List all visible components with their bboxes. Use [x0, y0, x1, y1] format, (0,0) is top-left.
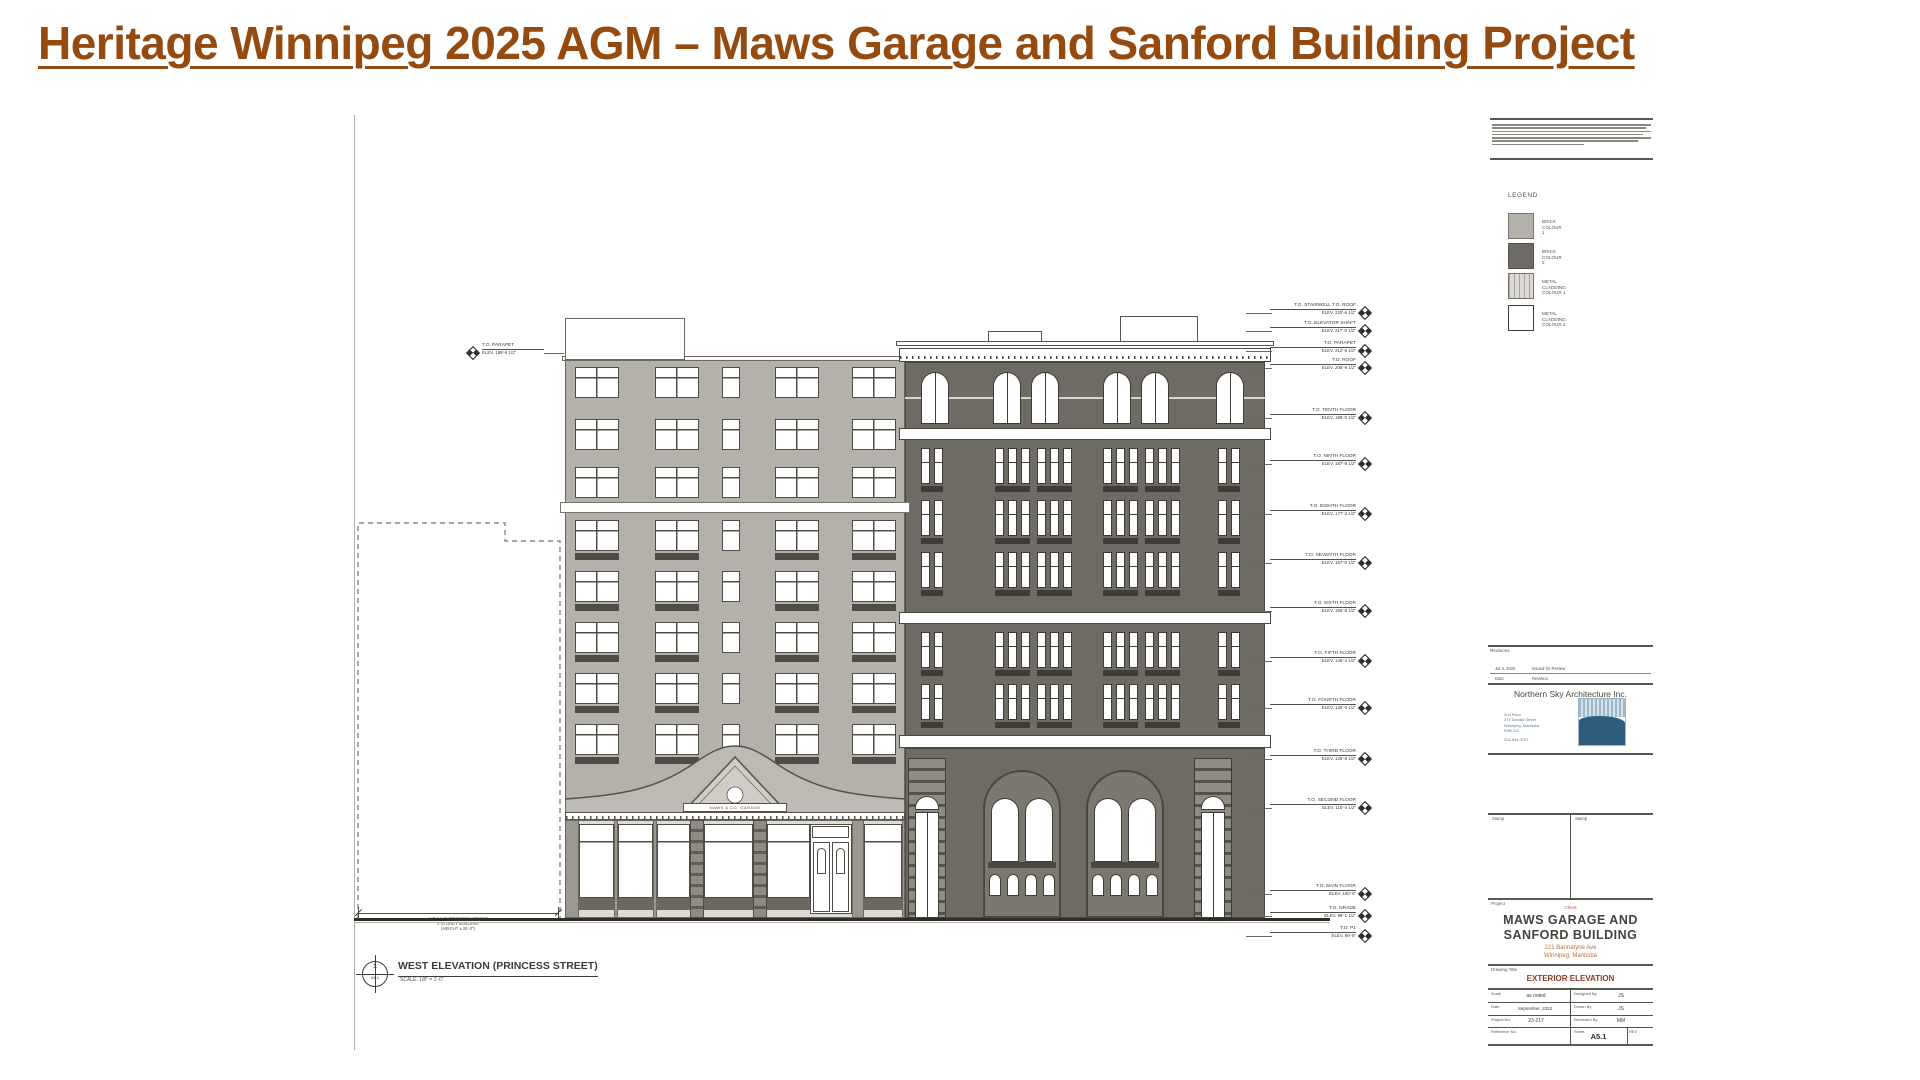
window [921, 500, 930, 536]
balcony-rail [1145, 670, 1180, 676]
window [1063, 632, 1072, 668]
elevation-marker: T.O. SECOND FLOORELEV. 115'-4 1/2" [1270, 798, 1356, 812]
storefront-bulkhead [618, 898, 653, 910]
balcony-rail [655, 655, 699, 662]
architect-logo [1578, 698, 1626, 746]
window [655, 367, 699, 398]
balcony-rail [1145, 590, 1180, 596]
window [775, 520, 819, 551]
legend-item-label: COLOUR 2 [1542, 255, 1562, 266]
revision-desc: Issued for Review [1532, 666, 1565, 671]
window [1171, 632, 1180, 668]
elevation-marker: T.O. EIGHTH FLOORELEV. 177'-4 1/2" [1270, 504, 1356, 518]
project-name-line1: MAWS GARAGE AND [1488, 913, 1653, 927]
elevation-marker: T.O. SIXTH FLOORELEV. 156'-8 1/2" [1270, 601, 1356, 615]
leader-line [544, 353, 564, 354]
view-title: WEST ELEVATION (PRINCESS STREET) [398, 960, 598, 977]
elevation-marker: T.O. STAIRWELL T.O. ROOFELEV. 220'-6 1/2… [1270, 303, 1356, 317]
brick-colour2-swatch [1508, 243, 1534, 269]
balcony-rail [1145, 538, 1180, 544]
balcony-rail [921, 486, 943, 492]
legend-item-label: COLOUR 1 [1542, 225, 1562, 236]
storefront-bulkhead [657, 898, 690, 910]
architect-address: 2nd Floor 374 Donald Street Winnipeg, Ma… [1504, 712, 1574, 742]
balcony-rail [1103, 590, 1138, 596]
window [1037, 500, 1046, 536]
leader-line [1246, 418, 1272, 419]
window [1008, 448, 1017, 484]
window [1008, 684, 1017, 720]
window [1021, 448, 1030, 484]
window [934, 552, 943, 588]
balcony-rail [1145, 722, 1180, 728]
window [921, 552, 930, 588]
elevation-marker: T.O. THIRD FLOORELEV. 125'-8 1/2" [1270, 749, 1356, 763]
elevation-marker: T.O. GRADEELEV. 99'-1 1/2" [1270, 906, 1356, 920]
storefront-window [704, 824, 753, 898]
right-building-belt-course [899, 428, 1271, 440]
window [655, 419, 699, 450]
elevation-marker: T.O. NINTH FLOORELEV. 187'-8 1/2" [1270, 454, 1356, 468]
window [1231, 552, 1240, 588]
window [1050, 500, 1059, 536]
window [1116, 500, 1125, 536]
balcony-rail [921, 670, 943, 676]
dimension-line [358, 913, 559, 914]
window [1231, 632, 1240, 668]
elevation-target-icon [1358, 324, 1372, 338]
storefront-window [618, 824, 653, 898]
window [1103, 448, 1112, 484]
elevation-marker: T.O. ELEVATOR SHAFTELEV. 217'-0 1/2" [1270, 321, 1356, 335]
basement-arch-window [1092, 874, 1104, 896]
arched-window [1141, 372, 1169, 424]
balcony-rail [575, 604, 619, 611]
window [1231, 500, 1240, 536]
balcony-rail [1037, 538, 1072, 544]
project-name-line2: SANFORD BUILDING [1488, 928, 1653, 942]
window [1116, 552, 1125, 588]
basement-arch-window [1043, 874, 1055, 896]
window [1158, 632, 1167, 668]
drawn-by-label: Drawn By [1574, 1004, 1591, 1009]
grade-line [354, 918, 1330, 921]
window [921, 684, 930, 720]
leader-line [1246, 563, 1272, 564]
window [1050, 552, 1059, 588]
designed-by-value: JS [1606, 993, 1636, 999]
leader-line [1246, 708, 1272, 709]
window [1063, 448, 1072, 484]
window [1158, 552, 1167, 588]
window [1103, 500, 1112, 536]
window [1171, 684, 1180, 720]
window [575, 673, 619, 704]
window [1231, 684, 1240, 720]
window [775, 419, 819, 450]
balcony-rail [1103, 670, 1138, 676]
scale-value: as noted [1506, 993, 1566, 999]
balcony-rail [852, 706, 896, 713]
balcony-rail [1218, 486, 1240, 492]
storefront-window [767, 824, 810, 898]
elevation-target-icon [1358, 654, 1372, 668]
window [1116, 684, 1125, 720]
legend: LEGEND BRICK COLOUR 1 BRICK COLOUR 2 MET… [1508, 192, 1658, 199]
elevation-marker: T.O. MAIN FLOORELEV. 100'-0" [1270, 884, 1356, 898]
window [1021, 684, 1030, 720]
window [1037, 552, 1046, 588]
window [1171, 448, 1180, 484]
window [1129, 500, 1138, 536]
window [852, 520, 896, 551]
right-building-cornice-cap [896, 341, 1274, 346]
arched-window [1216, 372, 1244, 424]
balcony-rail [1103, 538, 1138, 544]
window [1145, 552, 1154, 588]
storefront-window [657, 824, 690, 898]
elevation-target-icon [1358, 556, 1372, 570]
balcony-rail [575, 655, 619, 662]
window [1158, 684, 1167, 720]
window [852, 673, 896, 704]
rev-divider [1627, 1027, 1628, 1044]
leader-line [1246, 759, 1272, 760]
balcony-rail [852, 655, 896, 662]
reviewed-by-value: MM [1606, 1018, 1636, 1024]
left-building-roof-stair-enclosure [565, 318, 685, 360]
window [655, 622, 699, 653]
window [1129, 448, 1138, 484]
elevation-marker: T.O. PARAPETELEV. 188'-6 1/2" [482, 343, 544, 357]
window [722, 419, 740, 450]
right-base-belt-course [899, 735, 1271, 748]
elevation-marker: T.O. FIFTH FLOORELEV. 146'-4 1/2" [1270, 651, 1356, 665]
balcony-rail [655, 706, 699, 713]
balcony-rail [995, 486, 1030, 492]
bubble-sheet-ref: A5.1 [362, 975, 388, 983]
window [1218, 552, 1227, 588]
window [722, 467, 740, 498]
elevation-target-icon [1358, 306, 1372, 320]
arched-window [921, 372, 949, 424]
arch-impost-band [905, 397, 1265, 399]
notes-top-rule [1490, 118, 1653, 120]
bubble-number: 1 [362, 963, 388, 973]
drawing-title: EXTERIOR ELEVATION [1488, 974, 1653, 983]
leader-line [1246, 313, 1272, 314]
balcony-rail [1218, 722, 1240, 728]
designed-by-label: Designed By [1574, 991, 1597, 996]
leader-line [1246, 611, 1272, 612]
window [995, 552, 1004, 588]
window [1218, 684, 1227, 720]
storefront-bulkhead [767, 898, 810, 910]
window [1158, 500, 1167, 536]
project-address-line2: Winnipeg, Manitoba [1488, 953, 1653, 959]
slide: Heritage Winnipeg 2025 AGM – Maws Garage… [0, 0, 1920, 1080]
banded-column [690, 820, 704, 918]
window [575, 571, 619, 602]
legend-item-label: METAL CLADDING [1542, 311, 1566, 322]
balcony-rail [1103, 722, 1138, 728]
storefront-bulkhead [579, 898, 614, 910]
elevation-target-icon [1358, 929, 1372, 943]
window [995, 448, 1004, 484]
drawing-title-label: Drawing Title [1491, 967, 1517, 972]
door-transom [812, 826, 849, 838]
brick-colour1-swatch [1508, 213, 1534, 239]
stamp-label-2: Stamp [1575, 816, 1587, 821]
balcony-rail [921, 722, 943, 728]
window [934, 632, 943, 668]
window [921, 448, 930, 484]
project-address-line1: 221 Bannatyne Ave [1488, 945, 1653, 951]
leader-line [1246, 464, 1272, 465]
storefront-window [864, 824, 902, 898]
leader-line [1246, 331, 1272, 332]
bay-arched-window [1094, 798, 1122, 862]
bay-arched-window [1025, 798, 1053, 862]
elevation-marker: T.O. P1ELEV. 89'-6" [1270, 926, 1356, 940]
leader-line [1246, 894, 1272, 895]
window [722, 367, 740, 398]
window [852, 367, 896, 398]
window [575, 622, 619, 653]
stamp-label-1: Stamp [1492, 816, 1504, 821]
basement-arch-window [1110, 874, 1122, 896]
elevation-marker: T.O. FOURTH FLOORELEV. 136'-0 1/2" [1270, 698, 1356, 712]
elevation-marker: T.O. TENTH FLOORELEV. 198'-0 1/2" [1270, 408, 1356, 422]
window [655, 673, 699, 704]
window [852, 467, 896, 498]
reviewed-by-label: Reviewed By [1574, 1017, 1597, 1022]
window [1129, 552, 1138, 588]
balcony-rail [995, 670, 1030, 676]
grade-shadow-line [354, 922, 1330, 923]
door-panel-window [836, 848, 845, 874]
right-building-belt-course [899, 612, 1271, 624]
window [1037, 632, 1046, 668]
leader-line [1246, 661, 1272, 662]
storefront-pilaster [902, 820, 905, 918]
window [1116, 448, 1125, 484]
basement-arch-window [989, 874, 1001, 896]
window [1129, 632, 1138, 668]
legend-item-label: COLOUR 1 [1542, 290, 1566, 296]
metal-cladding1-swatch [1508, 273, 1534, 299]
right-building-cornice [899, 348, 1271, 362]
balcony-rail [1103, 486, 1138, 492]
date-value: September, 2023 [1502, 1006, 1568, 1011]
right-roof-stair-enclosure [1120, 316, 1198, 343]
legend-item: BRICK COLOUR 1 [1508, 213, 1534, 239]
window [852, 571, 896, 602]
window [995, 684, 1004, 720]
window [722, 520, 740, 551]
bay-arched-window [991, 798, 1019, 862]
window [775, 571, 819, 602]
project-no-value: 23-217 [1506, 1018, 1566, 1024]
window [1218, 500, 1227, 536]
view-scale: SCALE: 1/8" = 1'-0" [400, 977, 600, 985]
metal-cladding2-swatch [1508, 305, 1534, 331]
balcony-rail [1037, 590, 1072, 596]
balcony-rail [995, 590, 1030, 596]
balcony-rail [775, 655, 819, 662]
balcony-rail [995, 538, 1030, 544]
window [1063, 684, 1072, 720]
window [1129, 684, 1138, 720]
window [1145, 632, 1154, 668]
window [775, 367, 819, 398]
window [934, 684, 943, 720]
window [722, 673, 740, 704]
stamp-divider [1570, 813, 1571, 898]
window [1037, 448, 1046, 484]
window [995, 500, 1004, 536]
window [1021, 552, 1030, 588]
window [1218, 448, 1227, 484]
reference-no-label: Reference No. [1491, 1029, 1517, 1034]
entrance-door [1201, 812, 1225, 918]
balcony-rail [775, 706, 819, 713]
elevation-target-icon [1358, 801, 1372, 815]
window [921, 632, 930, 668]
leader-line [1246, 808, 1272, 809]
elevation-target-icon [1358, 604, 1372, 618]
balcony-rail [655, 604, 699, 611]
window [655, 467, 699, 498]
elevation-target-icon [1358, 701, 1372, 715]
basement-arch-window [1146, 874, 1158, 896]
revision-header: Revision [1532, 676, 1548, 681]
window [655, 520, 699, 551]
storefront-pilaster [565, 820, 579, 918]
balcony-rail [1218, 590, 1240, 596]
elevation-target-icon [1358, 411, 1372, 425]
elevation-marker: T.O. SEVENTH FLOORELEV. 167'-0 1/2" [1270, 553, 1356, 567]
window [934, 500, 943, 536]
window [1021, 632, 1030, 668]
balcony-rail [995, 722, 1030, 728]
window [1145, 684, 1154, 720]
window [1008, 632, 1017, 668]
revisions-label: Revisions [1490, 648, 1510, 653]
window [775, 673, 819, 704]
window [1063, 552, 1072, 588]
client-label: Client [1488, 906, 1653, 911]
legend-item: METAL CLADDING COLOUR 1 [1508, 273, 1534, 299]
elevation-target-icon [1358, 457, 1372, 471]
balcony-rail [775, 604, 819, 611]
balcony-rail [1218, 538, 1240, 544]
balcony-rail [1037, 486, 1072, 492]
scale-label: Scale [1491, 991, 1501, 996]
sheet-number: A5.1 [1570, 1032, 1627, 1041]
bay-arched-window [1128, 798, 1156, 862]
leader-line [1246, 368, 1272, 369]
legend-title: LEGEND [1508, 192, 1658, 199]
window [1158, 448, 1167, 484]
leader-line [1246, 916, 1272, 917]
drawn-by-value: JS [1606, 1006, 1636, 1012]
window [1145, 500, 1154, 536]
notes-text-lines [1492, 124, 1651, 147]
window [575, 467, 619, 498]
date-label: Date [1491, 1004, 1499, 1009]
revision-date-header: Date [1495, 676, 1504, 681]
balcony-rail [1037, 670, 1072, 676]
balcony-rail [1037, 722, 1072, 728]
window [1050, 448, 1059, 484]
window [1171, 500, 1180, 536]
window [1103, 684, 1112, 720]
storefront-window [579, 824, 614, 898]
garage-sign: MAWS & CO. GARAGE [683, 803, 787, 812]
elevation-target-icon [466, 346, 480, 360]
window [1063, 500, 1072, 536]
leader-line [1246, 351, 1272, 352]
arched-window [1031, 372, 1059, 424]
bay-sill-band [1091, 862, 1159, 868]
balcony-rail [921, 538, 943, 544]
entrance-door [915, 812, 939, 918]
window [722, 622, 740, 653]
cornice-dentils [566, 816, 904, 819]
basement-arch-window [1128, 874, 1140, 896]
storefront-bulkhead [704, 898, 753, 910]
balcony-rail [575, 706, 619, 713]
leader-line [1246, 514, 1272, 515]
window [775, 467, 819, 498]
leader-line [1246, 936, 1272, 937]
window [575, 520, 619, 551]
window [1037, 684, 1046, 720]
notes-bottom-rule [1490, 158, 1653, 160]
window [1171, 552, 1180, 588]
window [934, 448, 943, 484]
elevation-target-icon [1358, 507, 1372, 521]
window [722, 571, 740, 602]
window [1008, 500, 1017, 536]
storefront-pilaster [852, 820, 864, 918]
window [852, 622, 896, 653]
window [995, 632, 1004, 668]
legend-item-label: COLOUR 2 [1542, 322, 1566, 328]
window [575, 367, 619, 398]
window [1050, 684, 1059, 720]
basement-arch-window [1007, 874, 1019, 896]
window [1103, 552, 1112, 588]
door-panel-window [817, 848, 826, 874]
cornice-dentils [900, 356, 1270, 359]
window [575, 419, 619, 450]
elevation-target-icon [1358, 887, 1372, 901]
window [852, 419, 896, 450]
legend-item: METAL CLADDING COLOUR 2 [1508, 305, 1534, 331]
legend-item: BRICK COLOUR 2 [1508, 243, 1534, 269]
basement-arch-window [1025, 874, 1037, 896]
elevation-target-icon [1358, 909, 1372, 923]
elevation-marker: T.O. ROOFELEV. 208'-9 1/2" [1270, 358, 1356, 372]
rev-label: REV [1629, 1029, 1637, 1034]
banded-column [753, 820, 767, 918]
balcony-rail [852, 553, 896, 560]
arched-window [993, 372, 1021, 424]
revision-date: Jul 4, 2025 [1495, 666, 1516, 671]
balcony-rail [921, 590, 943, 596]
